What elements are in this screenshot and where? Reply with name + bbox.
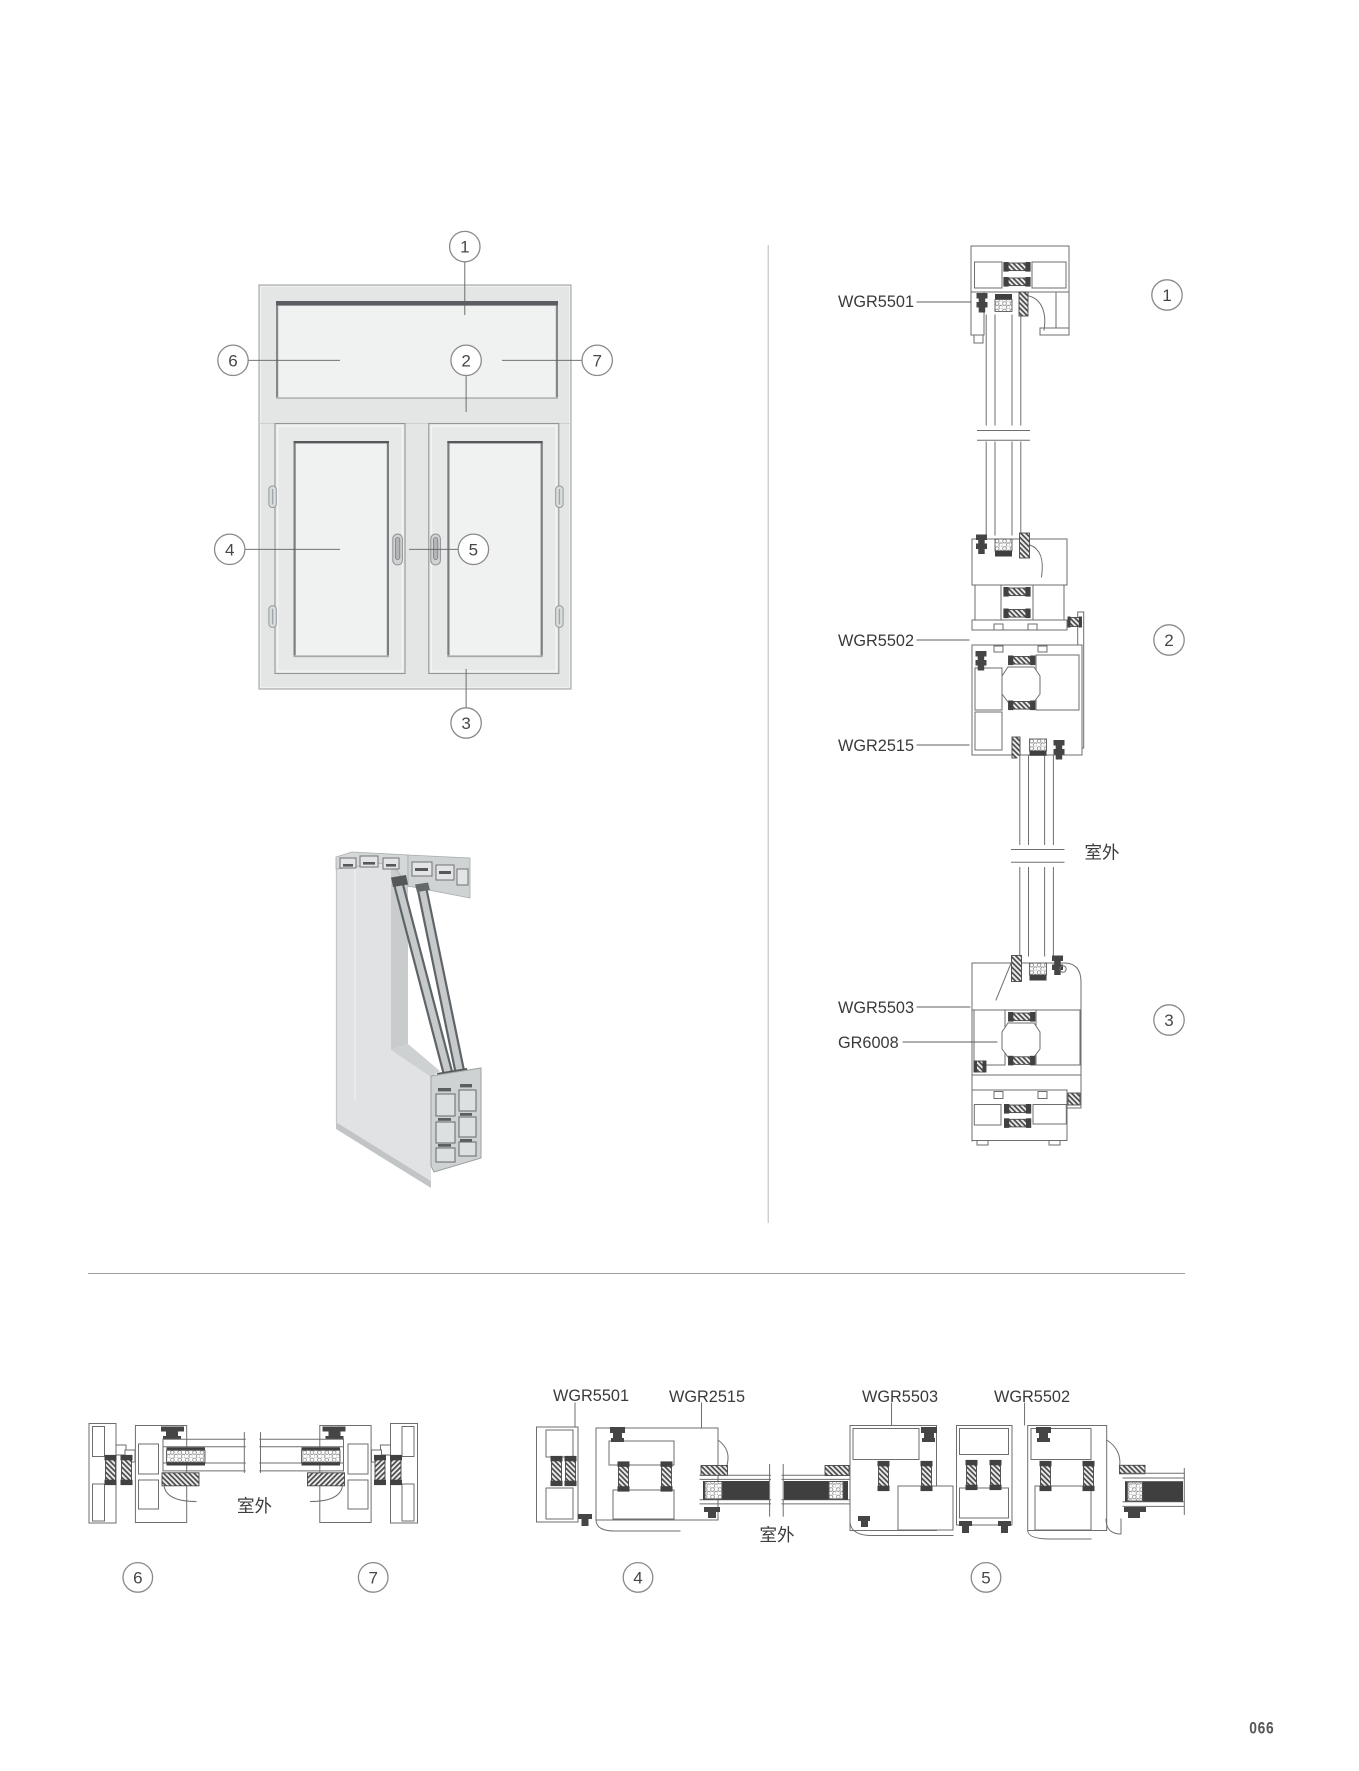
svg-text:3: 3 bbox=[461, 714, 470, 733]
svg-text:WGR5503: WGR5503 bbox=[862, 1388, 938, 1406]
svg-text:5: 5 bbox=[469, 540, 478, 559]
svg-text:WGR5502: WGR5502 bbox=[994, 1388, 1070, 1406]
svg-text:2: 2 bbox=[1164, 631, 1173, 650]
svg-text:1: 1 bbox=[460, 238, 469, 257]
svg-text:室外: 室外 bbox=[237, 1496, 272, 1516]
svg-text:室外: 室外 bbox=[760, 1525, 795, 1545]
svg-text:6: 6 bbox=[228, 351, 237, 370]
svg-text:6: 6 bbox=[133, 1568, 142, 1587]
svg-text:WGR2515: WGR2515 bbox=[838, 737, 914, 755]
svg-text:WGR5503: WGR5503 bbox=[838, 999, 914, 1017]
svg-text:室外: 室外 bbox=[1085, 843, 1120, 863]
svg-text:3: 3 bbox=[1164, 1011, 1173, 1030]
svg-text:4: 4 bbox=[225, 540, 234, 559]
svg-text:4: 4 bbox=[633, 1568, 642, 1587]
svg-text:2: 2 bbox=[461, 351, 470, 370]
svg-text:066: 066 bbox=[1249, 1719, 1274, 1737]
svg-text:WGR5501: WGR5501 bbox=[838, 293, 914, 311]
svg-text:WGR5502: WGR5502 bbox=[838, 632, 914, 650]
svg-text:7: 7 bbox=[368, 1568, 377, 1587]
svg-text:1: 1 bbox=[1162, 286, 1171, 305]
svg-text:WGR2515: WGR2515 bbox=[669, 1388, 745, 1406]
svg-text:7: 7 bbox=[592, 351, 601, 370]
svg-text:5: 5 bbox=[981, 1568, 990, 1587]
svg-text:WGR5501: WGR5501 bbox=[553, 1387, 629, 1405]
svg-text:GR6008: GR6008 bbox=[838, 1034, 899, 1052]
